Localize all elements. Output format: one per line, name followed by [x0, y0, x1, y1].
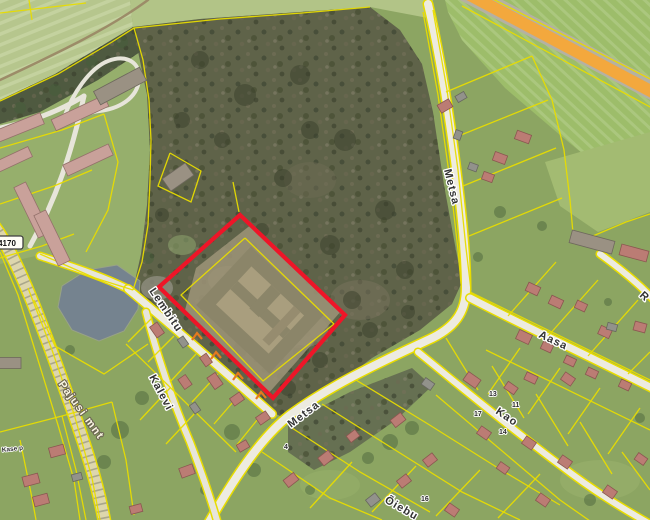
tree-canopy — [65, 345, 75, 355]
ground-patch — [284, 162, 336, 198]
map-canvas[interactable]: Pajusi mntLembituKaleviMetsaMetsaAasaKao… — [0, 0, 650, 520]
tree-canopy — [301, 121, 319, 139]
tree-canopy — [334, 129, 356, 151]
tree-canopy — [473, 252, 483, 262]
house-number-17: 17 — [474, 411, 482, 418]
tree-canopy — [97, 455, 111, 469]
tree-canopy — [224, 424, 240, 440]
tree-canopy — [49, 84, 61, 96]
house-number-4: 4 — [284, 444, 288, 451]
tree-canopy — [174, 112, 190, 128]
tree-canopy — [584, 494, 596, 506]
tree-canopy — [274, 169, 292, 187]
tree-canopy — [312, 352, 328, 368]
ground-patch — [300, 470, 360, 500]
tree-canopy — [375, 200, 395, 220]
tree-canopy — [604, 298, 612, 306]
house-number-14: 14 — [499, 429, 507, 436]
building — [0, 358, 21, 369]
tree-canopy — [494, 206, 506, 218]
tree-canopy — [191, 51, 209, 69]
tree-canopy — [405, 421, 419, 435]
tree-canopy — [343, 291, 361, 309]
tree-canopy — [396, 261, 414, 279]
tree-canopy — [234, 84, 256, 106]
tree-canopy — [14, 102, 26, 114]
road-number-badge: 4170 — [0, 236, 23, 249]
tree-canopy — [214, 132, 230, 148]
tree-canopy — [401, 305, 415, 319]
map-viewport[interactable]: Pajusi mntLembituKaleviMetsaMetsaAasaKao… — [0, 0, 650, 520]
tree-canopy — [362, 452, 374, 464]
house-number-13: 13 — [489, 391, 497, 398]
ground-patch — [168, 235, 196, 255]
tree-canopy — [155, 208, 169, 222]
house-number-11: 11 — [512, 402, 520, 409]
tree-canopy — [290, 65, 310, 85]
tree-canopy — [537, 221, 547, 231]
road-number-badge-text: 4170 — [0, 239, 16, 248]
tree-canopy — [135, 391, 149, 405]
tree-canopy — [635, 413, 645, 423]
tree-canopy — [362, 322, 378, 338]
house-number-16: 16 — [421, 496, 429, 503]
tree-canopy — [382, 434, 398, 450]
tree-canopy — [320, 235, 340, 255]
